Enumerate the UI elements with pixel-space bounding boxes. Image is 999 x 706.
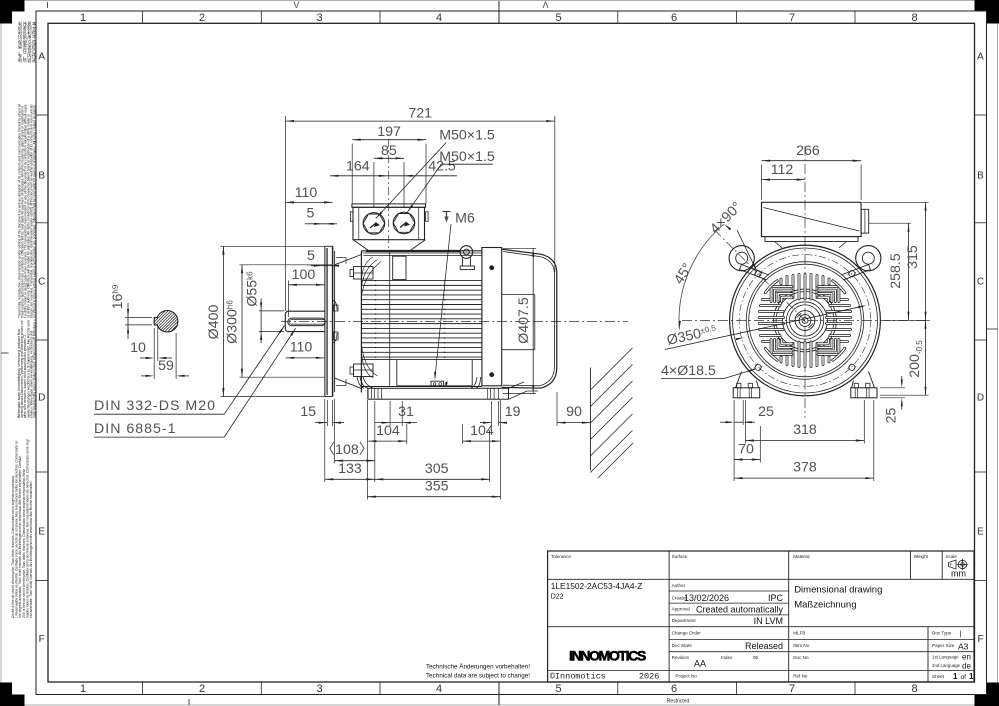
svg-text:C: C bbox=[977, 277, 984, 288]
svg-text:7: 7 bbox=[789, 683, 795, 695]
svg-text:M6: M6 bbox=[455, 211, 475, 227]
svg-text:Index: Index bbox=[721, 655, 733, 660]
svg-text:D: D bbox=[977, 393, 984, 404]
svg-text:Approval: Approval bbox=[672, 607, 690, 612]
svg-text:4×Ø18.5: 4×Ø18.5 bbox=[661, 363, 716, 379]
svg-text:1: 1 bbox=[953, 672, 958, 681]
svg-text:本文件不得擅自传递: 本文件不得擅自传递 bbox=[32, 21, 37, 64]
svg-text:Project No: Project No bbox=[675, 674, 697, 679]
svg-text:Doc Type: Doc Type bbox=[932, 631, 952, 636]
svg-text:M50×1.5: M50×1.5 bbox=[439, 149, 495, 165]
svg-text:MLFB: MLFB bbox=[793, 631, 805, 636]
svg-text:110: 110 bbox=[290, 340, 313, 356]
svg-text:of: of bbox=[961, 674, 967, 681]
svg-text:INNOMOTICS: INNOMOTICS bbox=[569, 648, 646, 664]
svg-text:2: 2 bbox=[199, 683, 205, 695]
svg-text:31: 31 bbox=[398, 404, 414, 420]
svg-text:en: en bbox=[962, 653, 971, 662]
svg-text:197: 197 bbox=[377, 124, 401, 140]
svg-text:4: 4 bbox=[436, 12, 442, 24]
svg-text:Author: Author bbox=[672, 583, 686, 588]
svg-text:4×90°: 4×90° bbox=[707, 199, 745, 237]
svg-text:违者负赔偿责任，所: 违者负赔偿责任，所 bbox=[23, 22, 28, 64]
svg-text:mm: mm bbox=[951, 569, 966, 579]
svg-text:Scale: Scale bbox=[946, 554, 958, 559]
svg-text:2026: 2026 bbox=[639, 672, 659, 682]
svg-text:70: 70 bbox=[738, 442, 754, 458]
svg-text:Ø407.5: Ø407.5 bbox=[516, 297, 532, 344]
svg-text:Doc No: Doc No bbox=[793, 655, 809, 660]
svg-text:/oder Bearbeitung dieses Dokum: /oder Bearbeitung dieses Dokumentes, Ver… bbox=[33, 319, 37, 418]
svg-text:315: 315 bbox=[905, 245, 921, 269]
svg-text:104: 104 bbox=[470, 423, 494, 439]
svg-text:Technische Änderungen vorbehal: Technische Änderungen vorbehalten! bbox=[426, 662, 530, 670]
svg-text:F: F bbox=[39, 634, 45, 645]
svg-text:Department: Department bbox=[672, 618, 697, 623]
svg-text:Ø400: Ø400 bbox=[206, 305, 222, 340]
svg-text:15: 15 bbox=[300, 404, 316, 420]
svg-text:90: 90 bbox=[566, 404, 582, 420]
svg-text:B: B bbox=[977, 170, 984, 181]
svg-text:DIN 332-DS M20: DIN 332-DS M20 bbox=[94, 398, 216, 414]
svg-text:6: 6 bbox=[671, 683, 677, 695]
svg-text:E: E bbox=[38, 527, 45, 538]
svg-text:8: 8 bbox=[911, 683, 917, 695]
svg-text:378: 378 bbox=[793, 460, 817, 476]
svg-text:B: B bbox=[38, 170, 45, 181]
svg-text:Item No: Item No bbox=[793, 643, 810, 648]
svg-text:AA: AA bbox=[694, 659, 706, 669]
svg-text:100: 100 bbox=[292, 267, 316, 283]
svg-text:Paper Size: Paper Size bbox=[932, 643, 955, 648]
svg-text:5: 5 bbox=[555, 683, 561, 695]
svg-text:Sheet: Sheet bbox=[932, 674, 945, 679]
svg-text:Change Order: Change Order bbox=[672, 631, 702, 636]
svg-text:1: 1 bbox=[969, 672, 974, 681]
svg-text:112: 112 bbox=[771, 162, 794, 178]
svg-text:3: 3 bbox=[317, 683, 323, 695]
svg-text:Revision: Revision bbox=[672, 655, 690, 660]
svg-text:Weight: Weight bbox=[914, 554, 929, 559]
svg-text:有权利均保留。专利: 有权利均保留。专利 bbox=[18, 21, 23, 63]
svg-text:16h9: 16h9 bbox=[110, 284, 126, 309]
svg-text:Released: Released bbox=[745, 641, 783, 651]
svg-text:5: 5 bbox=[555, 12, 561, 24]
svg-text:1: 1 bbox=[80, 683, 86, 695]
svg-text:Surface: Surface bbox=[672, 554, 688, 559]
svg-text:Technical data are subject to: Technical data are subject to change! bbox=[426, 672, 530, 679]
svg-text:4: 4 bbox=[436, 683, 442, 695]
svg-text:F: F bbox=[977, 634, 983, 645]
svg-text:05: 05 bbox=[753, 655, 759, 660]
svg-text:133: 133 bbox=[338, 461, 362, 477]
svg-text:|: | bbox=[960, 631, 962, 638]
svg-text:19: 19 bbox=[505, 404, 521, 420]
svg-text:de: de bbox=[962, 662, 971, 671]
svg-text:1LE1502-2AC53-4JA4-Z: 1LE1502-2AC53-4JA4-Z bbox=[551, 581, 643, 591]
svg-text:Maßzeichnung: Maßzeichnung bbox=[794, 600, 856, 611]
svg-text:Restricted: Restricted bbox=[667, 699, 690, 705]
svg-text:6: 6 bbox=[671, 12, 677, 24]
svg-text:200-0.5: 200-0.5 bbox=[907, 340, 924, 378]
svg-text:5: 5 bbox=[307, 248, 315, 264]
svg-text:Doc State: Doc State bbox=[672, 643, 693, 648]
svg-text:Ø350±0.5: Ø350±0.5 bbox=[665, 322, 718, 349]
svg-text:D22: D22 bbox=[551, 594, 564, 601]
svg-text:5: 5 bbox=[307, 205, 315, 221]
svg-text:59: 59 bbox=[158, 358, 174, 374]
svg-text:on thereof to others without e: on thereof to others without express aut… bbox=[33, 105, 37, 318]
svg-text:E: E bbox=[977, 527, 984, 538]
svg-text:25: 25 bbox=[758, 404, 774, 420]
svg-text:Material: Material bbox=[793, 554, 809, 559]
svg-text:8: 8 bbox=[911, 12, 917, 24]
svg-text:Tolerance: Tolerance bbox=[551, 554, 571, 559]
svg-text:Λ: Λ bbox=[542, 0, 548, 10]
svg-text:Dimensional drawing: Dimensional drawing bbox=[794, 585, 882, 596]
svg-text:1st Language: 1st Language bbox=[932, 655, 959, 660]
svg-text:Created automatically: Created automatically bbox=[696, 605, 784, 615]
svg-text:10: 10 bbox=[130, 340, 146, 356]
svg-text:355: 355 bbox=[425, 478, 449, 494]
svg-text:104: 104 bbox=[376, 423, 400, 439]
svg-text:D: D bbox=[38, 393, 45, 404]
svg-text:164: 164 bbox=[346, 159, 370, 175]
svg-text:305: 305 bbox=[425, 461, 449, 477]
svg-text:266: 266 bbox=[796, 143, 820, 159]
svg-text:13/02/2026: 13/02/2026 bbox=[684, 593, 729, 603]
svg-text:318: 318 bbox=[793, 422, 817, 438]
svg-text:V: V bbox=[293, 0, 299, 10]
svg-text:Ø300h6: Ø300h6 bbox=[225, 300, 241, 344]
svg-text:M50×1.5: M50×1.5 bbox=[439, 128, 495, 144]
svg-text:7: 7 bbox=[789, 12, 795, 24]
svg-text:eto aziendale. Tutti i diritti: eto aziendale. Tutti i diritti riservati… bbox=[29, 481, 33, 618]
svg-text:258.5: 258.5 bbox=[888, 253, 904, 289]
svg-text:IPC: IPC bbox=[768, 593, 784, 603]
svg-text:2: 2 bbox=[199, 12, 205, 24]
svg-text:〈108〉: 〈108〉 bbox=[321, 442, 373, 458]
svg-text:1: 1 bbox=[80, 12, 86, 24]
svg-text:25: 25 bbox=[883, 408, 899, 424]
svg-text:复制利用交流其内容: 复制利用交流其内容 bbox=[27, 21, 32, 64]
svg-text:Ref No: Ref No bbox=[793, 674, 808, 679]
svg-text:©Innomotics: ©Innomotics bbox=[550, 672, 606, 682]
svg-text:110: 110 bbox=[295, 185, 318, 201]
svg-text:A: A bbox=[977, 52, 984, 63]
svg-text:C: C bbox=[38, 277, 45, 288]
svg-text:2nd Language: 2nd Language bbox=[932, 663, 961, 668]
svg-text:3: 3 bbox=[317, 12, 323, 24]
svg-text:IN LVM: IN LVM bbox=[754, 616, 783, 626]
svg-text:A3: A3 bbox=[958, 642, 969, 652]
svg-text:721: 721 bbox=[408, 106, 432, 122]
svg-text:A: A bbox=[38, 52, 45, 63]
svg-text:DIN 6885-1: DIN 6885-1 bbox=[94, 421, 177, 437]
svg-text:85: 85 bbox=[381, 143, 397, 159]
svg-text:Ø55k6: Ø55k6 bbox=[245, 271, 261, 307]
